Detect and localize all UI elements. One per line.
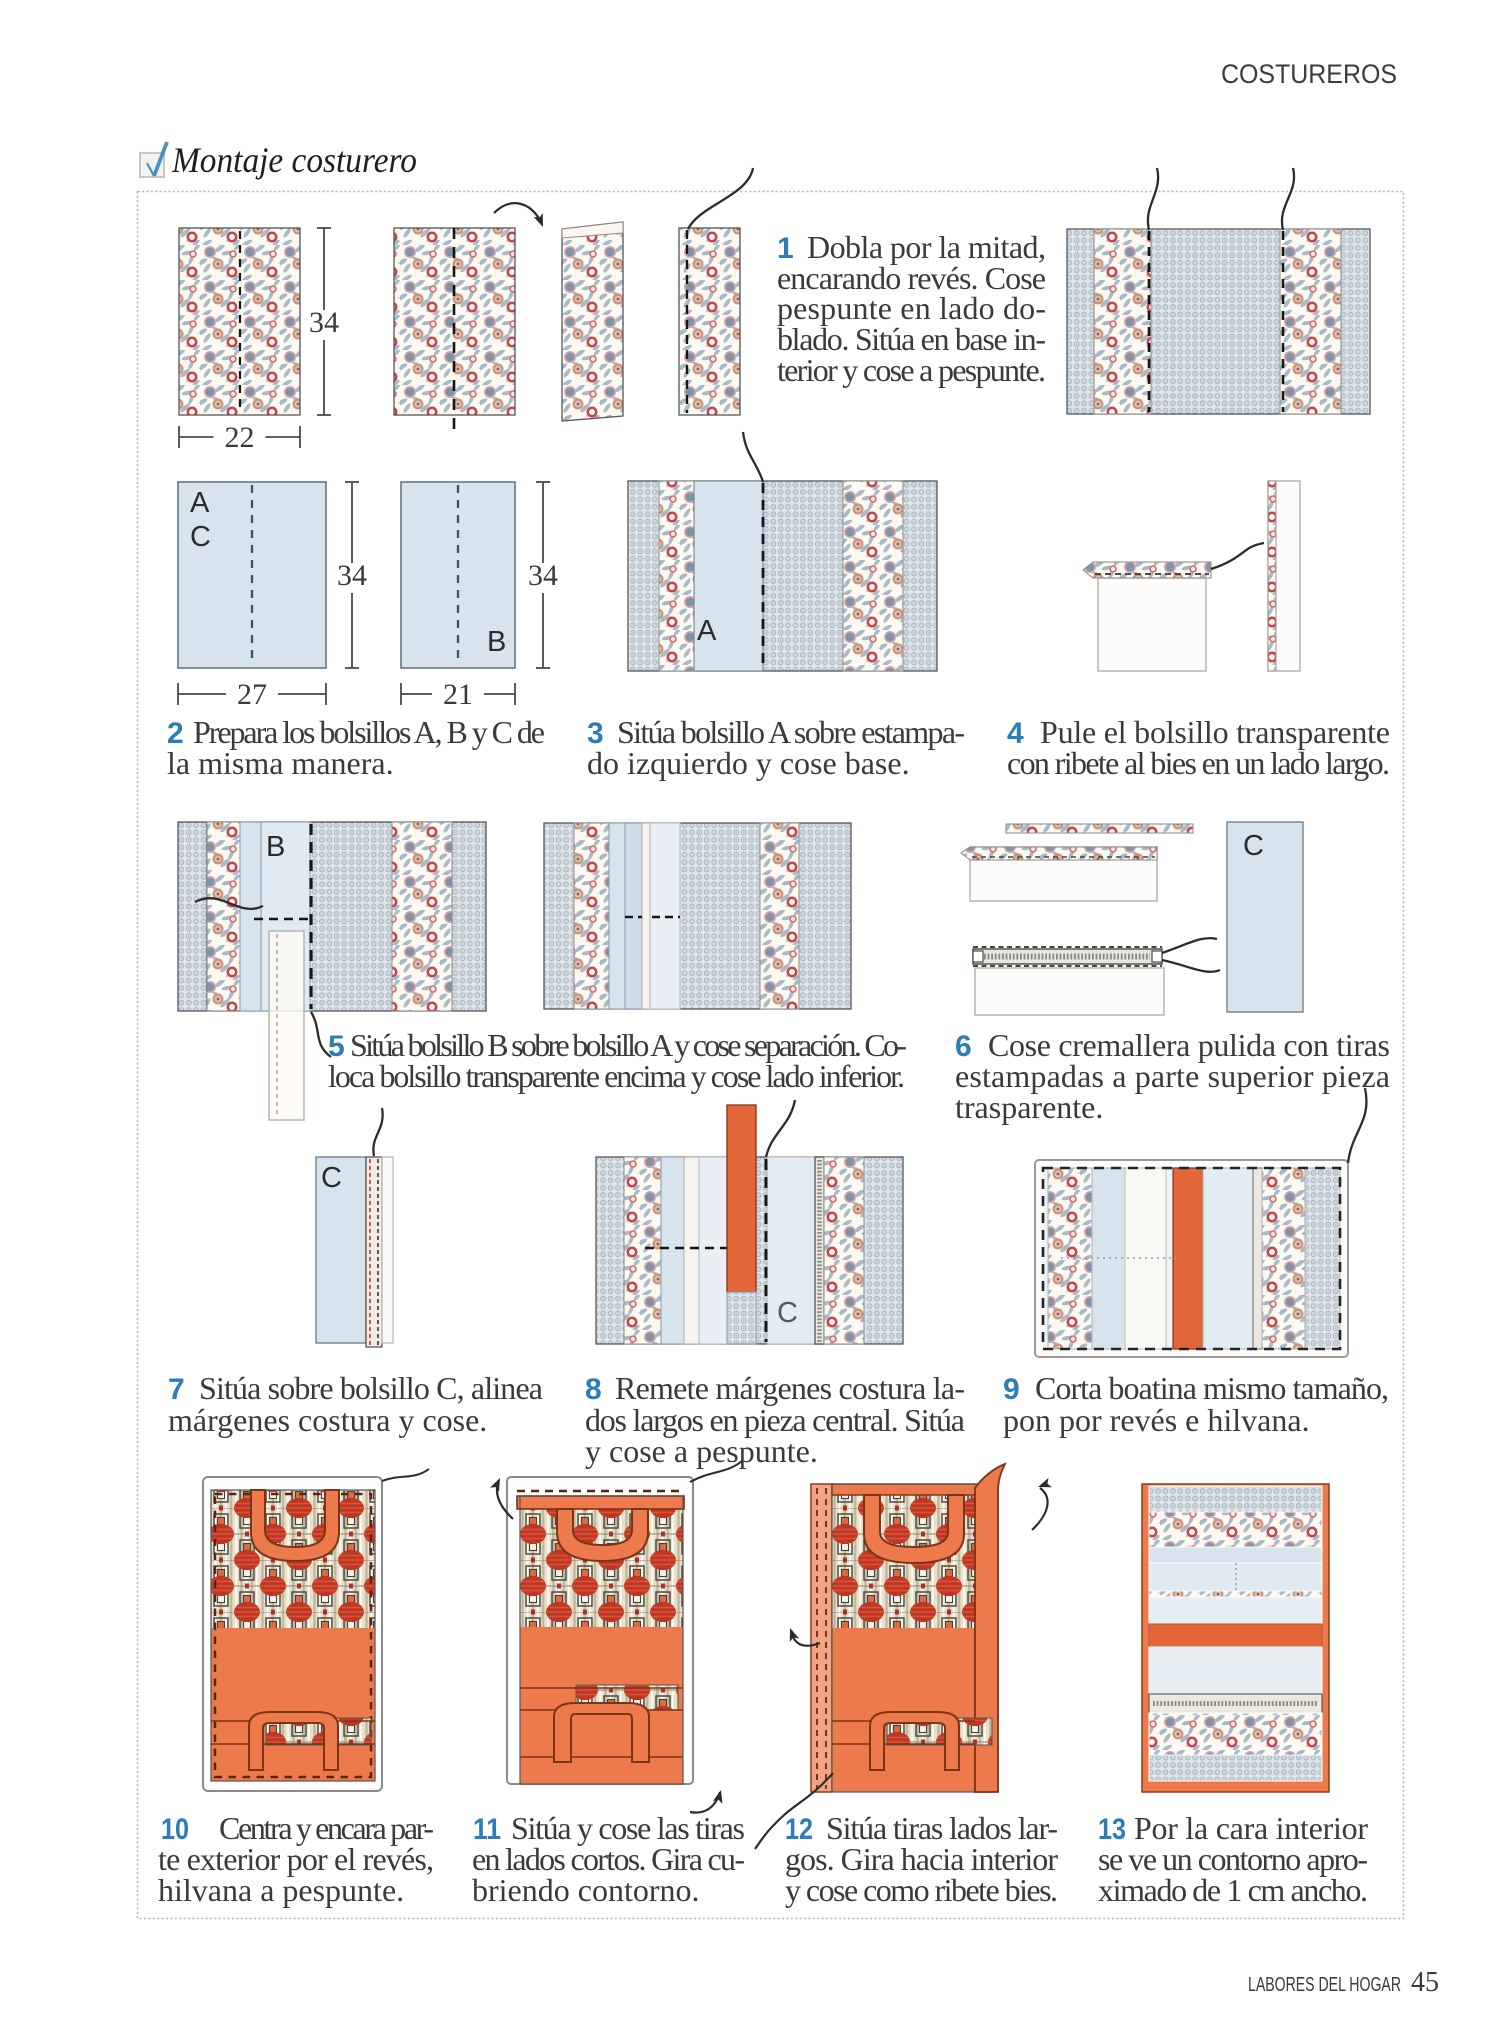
svg-text:trasparente.: trasparente. xyxy=(955,1089,1103,1125)
svg-text:la misma manera.: la misma manera. xyxy=(167,745,394,781)
svg-text:27: 27 xyxy=(237,678,267,711)
svg-text:A: A xyxy=(190,487,210,519)
svg-text:hilvana a pespunte.: hilvana a pespunte. xyxy=(158,1872,404,1908)
svg-text:y cose a pespunte.: y cose a pespunte. xyxy=(585,1433,818,1469)
svg-text:C: C xyxy=(1243,830,1264,862)
svg-text:34: 34 xyxy=(528,559,558,592)
svg-text:34: 34 xyxy=(337,559,367,592)
svg-text:briendo contorno.: briendo contorno. xyxy=(472,1872,700,1908)
svg-text:márgenes costura y cose.: márgenes costura y cose. xyxy=(168,1402,487,1438)
svg-text:loca bolsillo transparente enc: loca bolsillo transparente encima y cose… xyxy=(328,1058,905,1094)
svg-text:22: 22 xyxy=(225,421,255,454)
svg-text:ximado de 1 cm ancho.: ximado de 1 cm ancho. xyxy=(1098,1872,1368,1908)
svg-text:21: 21 xyxy=(443,678,473,711)
svg-text:A: A xyxy=(697,615,717,647)
svg-text:C: C xyxy=(321,1162,342,1194)
svg-text:COSTUREROS: COSTUREROS xyxy=(1221,59,1397,89)
svg-text:B: B xyxy=(487,626,506,658)
svg-text:y cose como ribete bies.: y cose como ribete bies. xyxy=(785,1872,1058,1908)
svg-text:LABORES DEL HOGAR: LABORES DEL HOGAR xyxy=(1248,1974,1401,1996)
svg-text:Remete márgenes costura la-: Remete márgenes costura la- xyxy=(615,1370,965,1406)
svg-text:C: C xyxy=(190,521,211,553)
svg-text:con ribete al bies en un lado: con ribete al bies en un lado largo. xyxy=(1007,745,1390,781)
svg-text:B: B xyxy=(266,831,285,863)
svg-text:C: C xyxy=(777,1297,798,1329)
svg-text:Montaje costurero: Montaje costurero xyxy=(171,140,417,180)
svg-text:terior y cose a pespunte.: terior y cose a pespunte. xyxy=(777,352,1046,388)
svg-text:Corta boatina mismo tamaño,: Corta boatina mismo tamaño, xyxy=(1035,1370,1389,1406)
svg-text:45: 45 xyxy=(1411,1967,1439,1998)
svg-text:do izquierdo y cose base.: do izquierdo y cose base. xyxy=(587,745,910,781)
svg-text:34: 34 xyxy=(309,306,339,339)
svg-text:pon por revés e hilvana.: pon por revés e hilvana. xyxy=(1003,1402,1310,1438)
svg-text:Sitúa sobre bolsillo C, alinea: Sitúa sobre bolsillo C, alinea xyxy=(199,1370,543,1406)
